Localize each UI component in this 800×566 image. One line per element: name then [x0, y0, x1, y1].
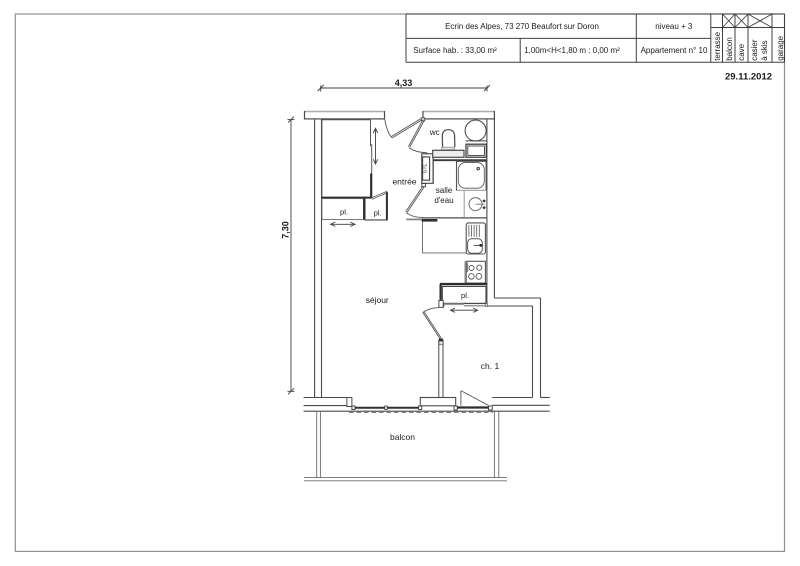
svg-text:balcon: balcon — [390, 432, 415, 442]
svg-text:garage: garage — [776, 35, 785, 60]
svg-text:Appartement n° 10: Appartement n° 10 — [641, 46, 708, 55]
svg-text:7,30: 7,30 — [281, 221, 291, 239]
svg-text:29.11.2012: 29.11.2012 — [725, 72, 772, 83]
svg-text:d'eau: d'eau — [434, 196, 453, 205]
svg-text:1,00m<H<1,80 m : 0,00 m²: 1,00m<H<1,80 m : 0,00 m² — [524, 46, 620, 55]
svg-text:Surface hab. : 33,00 m²: Surface hab. : 33,00 m² — [413, 46, 497, 55]
svg-text:ch. 1: ch. 1 — [481, 361, 500, 371]
svg-text:entrée: entrée — [392, 177, 416, 187]
svg-text:balcon: balcon — [725, 37, 734, 61]
svg-text:pl.: pl. — [340, 208, 348, 217]
svg-text:GTL: GTL — [423, 163, 429, 173]
svg-text:wc: wc — [429, 128, 440, 137]
svg-text:salle: salle — [436, 186, 453, 195]
svg-text:pl.: pl. — [461, 291, 469, 300]
svg-text:casier: casier — [750, 39, 759, 61]
svg-text:Ecrin des Alpes, 73 270 Beaufo: Ecrin des Alpes, 73 270 Beaufort sur Dor… — [445, 22, 599, 31]
svg-text:cave: cave — [737, 43, 746, 60]
svg-text:séjour: séjour — [366, 295, 389, 305]
svg-text:terrasse: terrasse — [713, 31, 722, 60]
svg-text:pl.: pl. — [374, 209, 382, 218]
svg-text:niveau + 3: niveau + 3 — [655, 22, 693, 31]
svg-text:4,33: 4,33 — [395, 78, 413, 88]
svg-text:à skis: à skis — [760, 40, 769, 60]
